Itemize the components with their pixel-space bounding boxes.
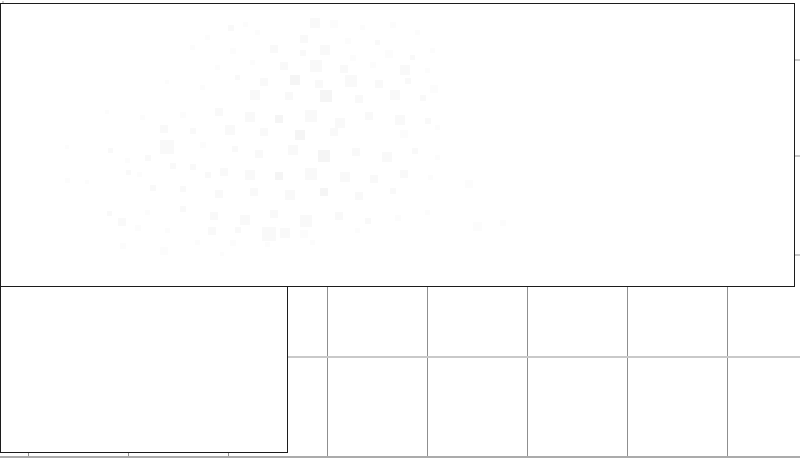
top-axes-panel — [0, 3, 795, 287]
bottom-left-axes-panel — [0, 286, 288, 453]
axes-bottom-edge-line — [0, 456, 800, 458]
figure-canvas — [0, 0, 800, 458]
